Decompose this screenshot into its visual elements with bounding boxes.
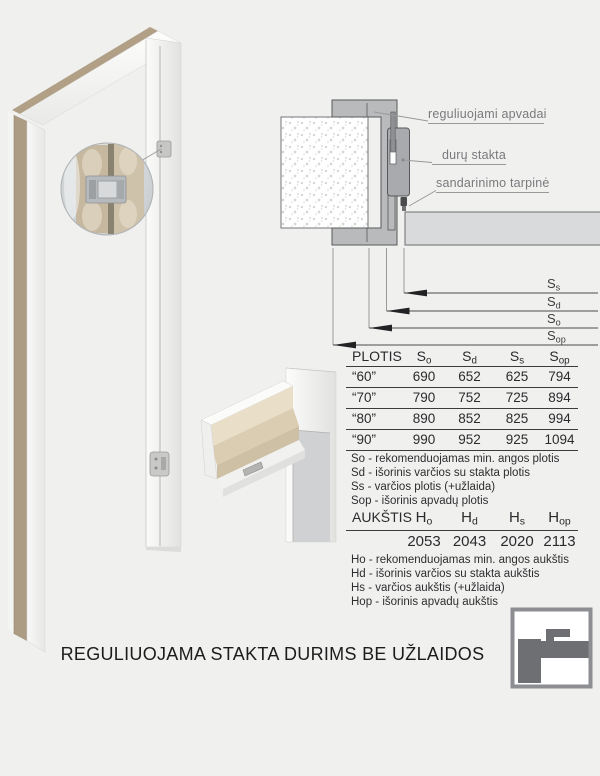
- col-sub: d: [471, 355, 476, 366]
- width-legend: So - rekomenduojamas min. angos plotis S…: [351, 452, 586, 508]
- col-base: H: [509, 509, 520, 526]
- col-sub: op: [559, 355, 570, 366]
- dim-base: S: [547, 311, 556, 326]
- height-legend: Ho - rekomenduojamas min. angos aukštis …: [351, 553, 586, 609]
- cell: 825: [493, 409, 541, 429]
- height-table-values: 2053 2043 2020 2113: [346, 531, 578, 553]
- legend-item-hd: Hd - išorinis varčios su stakta aukštis: [351, 567, 586, 581]
- door-leaf-section: [405, 212, 600, 245]
- width-table-title: PLOTIS: [346, 346, 402, 366]
- col-base: S: [549, 348, 558, 364]
- legend-item-so: So - rekomenduojamas min. angos plotis: [351, 452, 586, 466]
- dim-base: S: [547, 276, 556, 291]
- cell: 890: [402, 409, 446, 429]
- cell: 2113: [541, 531, 578, 553]
- col-sub: s: [520, 516, 525, 528]
- cell: 725: [493, 388, 541, 408]
- left-jamb: [8, 112, 45, 652]
- extension-lines: [333, 248, 404, 345]
- dim-base: S: [547, 328, 556, 343]
- cell: 625: [493, 367, 541, 387]
- frame-profile-illustration: [195, 356, 345, 546]
- height-col-hs: Hs: [493, 505, 541, 530]
- sealing-gasket: [401, 197, 408, 211]
- dimension-label-sop: Sop: [547, 328, 566, 344]
- pointer-dot: [401, 158, 404, 161]
- table-row-70: “70” 790 752 725 894: [346, 388, 578, 409]
- hinge-fitting-lower: [150, 452, 169, 476]
- col-sub: d: [472, 516, 478, 528]
- legend-item-ho: Ho - rekomenduojamas min. angos aukštis: [351, 553, 586, 567]
- callout-reguliuojami-apvadai: reguliuojami apvadai: [428, 107, 544, 124]
- row-label: “70”: [346, 388, 402, 408]
- height-table-header: AUKŠTIS Ho Hd Hs Hop: [346, 505, 578, 531]
- legend-item-sd: Sd - išorinis varčios su stakta plotis: [351, 466, 586, 480]
- door-jamb-profile: [388, 112, 410, 196]
- row-label: “90”: [346, 430, 402, 450]
- height-col-ho: Ho: [402, 505, 446, 530]
- cell: 2020: [493, 531, 541, 553]
- width-col-sd: Sd: [446, 346, 493, 366]
- cell: 894: [541, 388, 578, 408]
- empty-cell: [346, 531, 402, 553]
- col-base: H: [416, 509, 427, 526]
- table-row-60: “60” 690 652 625 794: [346, 367, 578, 388]
- dim-sub: d: [556, 300, 561, 310]
- callout-sandarinimo-tarpine: sandarinimo tarpinė: [436, 176, 549, 193]
- height-table: AUKŠTIS Ho Hd Hs Hop 2053 2043 2020 2113: [346, 505, 578, 553]
- col-base: S: [417, 348, 426, 364]
- cell: 2043: [446, 531, 493, 553]
- brand-logo: [510, 607, 593, 689]
- width-col-so: So: [402, 346, 446, 366]
- height-col-hd: Hd: [446, 505, 493, 530]
- table-row-80: “80” 890 852 825 994: [346, 409, 578, 430]
- width-col-sop: Sop: [541, 346, 578, 366]
- cell: 794: [541, 367, 578, 387]
- width-col-ss: Ss: [493, 346, 541, 366]
- dim-sub: o: [556, 317, 561, 327]
- cell: 790: [402, 388, 446, 408]
- col-base: H: [461, 509, 472, 526]
- col-sub: s: [519, 355, 524, 366]
- legend-item-ss: Ss - varčios plotis (+užlaida): [351, 480, 586, 494]
- cell: 1094: [541, 430, 578, 450]
- row-label: “80”: [346, 409, 402, 429]
- row-label: “60”: [346, 367, 402, 387]
- page: reguliuojami apvadai durų stakta sandari…: [0, 0, 600, 776]
- callout-duru-stakta: durų stakta: [432, 148, 506, 165]
- cell: 990: [402, 430, 446, 450]
- cell: 752: [446, 388, 493, 408]
- col-sub: o: [426, 355, 431, 366]
- door-frame-illustration: [0, 0, 250, 660]
- height-table-title: AUKŠTIS: [346, 505, 402, 530]
- dimension-label-ss: Ss: [547, 276, 560, 292]
- cell: 852: [446, 409, 493, 429]
- col-base: H: [548, 509, 559, 526]
- cell: 2053: [402, 531, 446, 553]
- page-title: REGULIUOJAMA STAKTA DURIMS BE UŽLAIDOS: [0, 644, 545, 665]
- cell: 690: [402, 367, 446, 387]
- dim-sub: s: [556, 282, 561, 292]
- wall-section: [281, 117, 368, 228]
- cell: 925: [493, 430, 541, 450]
- table-row-90: “90” 990 952 925 1094: [346, 430, 578, 451]
- cell: 994: [541, 409, 578, 429]
- dimension-label-so: So: [547, 311, 561, 327]
- legend-item-hs: Hs - varčios aukštis (+užlaida): [351, 581, 586, 595]
- col-sub: op: [559, 516, 571, 528]
- col-base: S: [510, 348, 519, 364]
- hinge-fitting-upper: [157, 141, 171, 157]
- dimension-label-sd: Sd: [547, 294, 561, 310]
- hinge-detail-circle: [61, 143, 153, 235]
- col-sub: o: [427, 516, 433, 528]
- width-table-header: PLOTIS So Sd Ss Sop: [346, 346, 578, 367]
- dim-base: S: [547, 294, 556, 309]
- dim-sub: op: [556, 334, 566, 344]
- cell: 652: [446, 367, 493, 387]
- width-table: PLOTIS So Sd Ss Sop “60” 690 652 625 794…: [346, 346, 578, 451]
- cell: 952: [446, 430, 493, 450]
- height-col-hop: Hop: [541, 505, 578, 530]
